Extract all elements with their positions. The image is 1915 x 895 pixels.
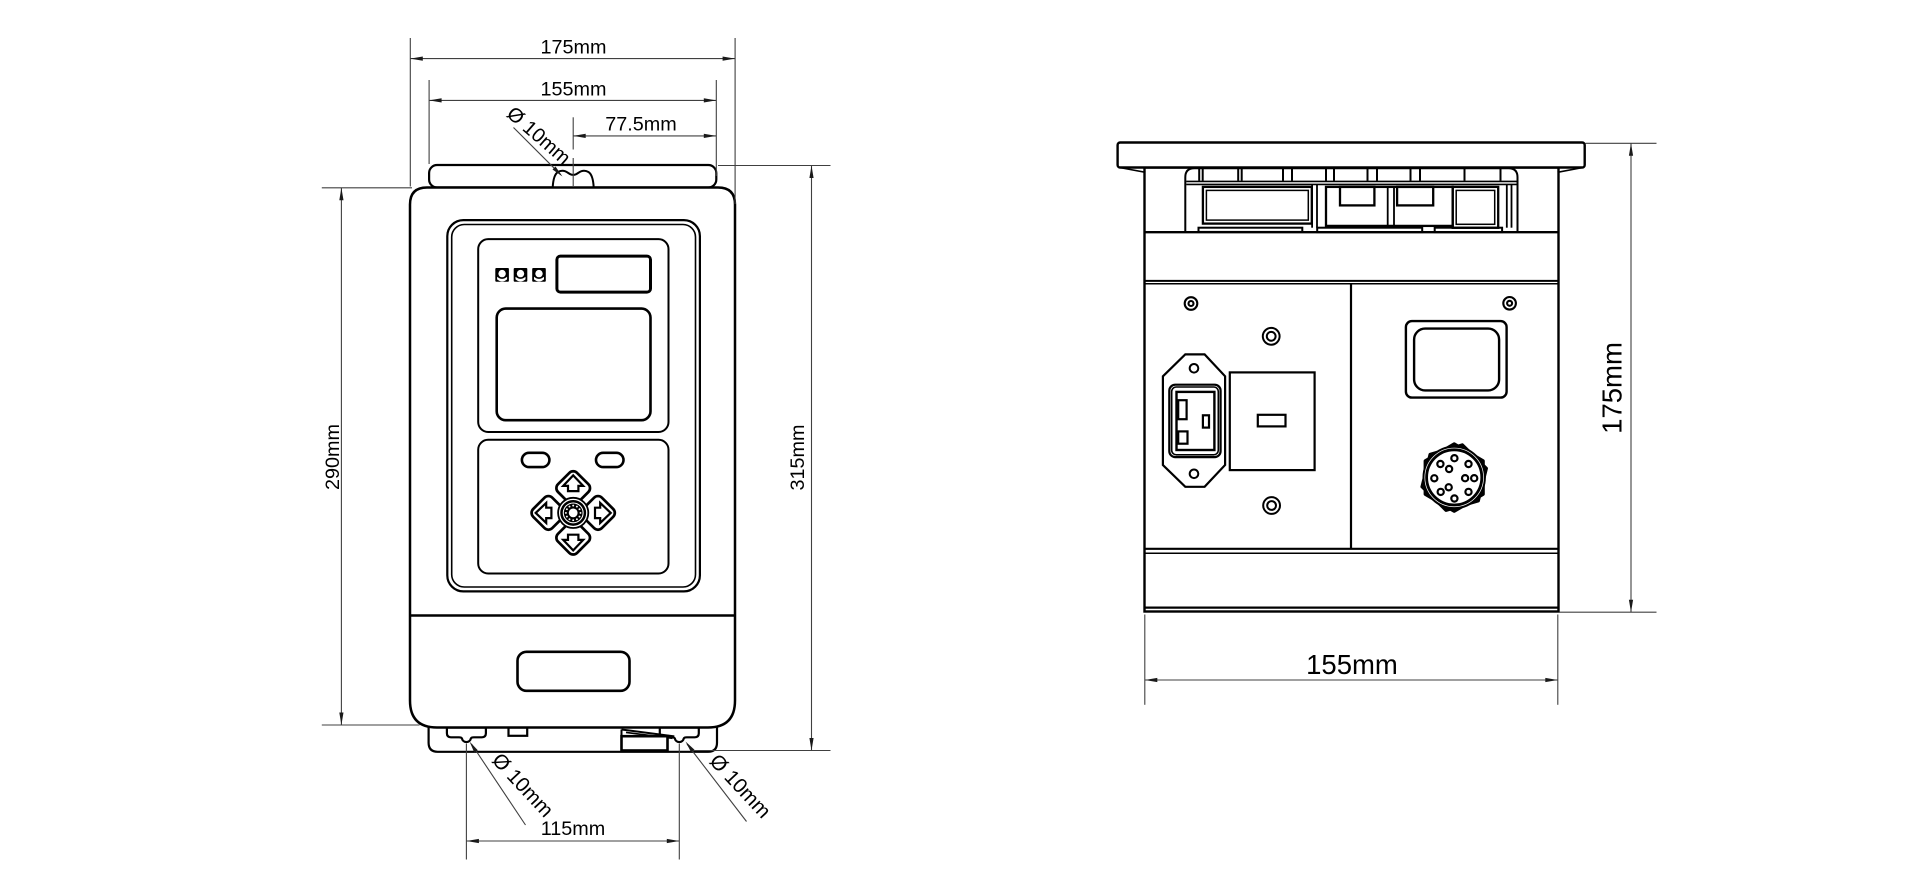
- svg-text:115mm: 115mm: [541, 818, 606, 840]
- svg-text:77.5mm: 77.5mm: [605, 114, 676, 136]
- svg-text:175mm: 175mm: [541, 37, 607, 59]
- svg-text:155mm: 155mm: [541, 78, 607, 100]
- svg-text:155mm: 155mm: [1306, 649, 1398, 680]
- svg-text:175mm: 175mm: [1597, 342, 1628, 434]
- svg-text:290mm: 290mm: [322, 424, 344, 490]
- svg-text:315mm: 315mm: [787, 425, 809, 491]
